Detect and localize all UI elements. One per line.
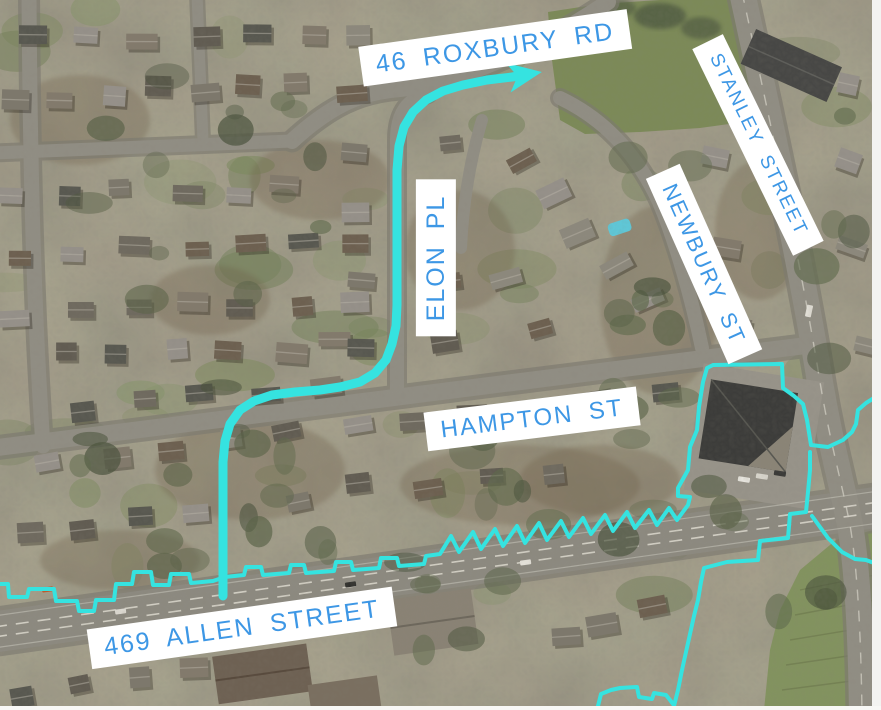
right-gutter bbox=[872, 0, 881, 710]
aerial-basemap bbox=[0, 0, 881, 710]
map-view: 46 ROXBURY RD STANLEY STREET ELON PL NEW… bbox=[0, 0, 881, 710]
bottom-gutter bbox=[0, 706, 881, 710]
